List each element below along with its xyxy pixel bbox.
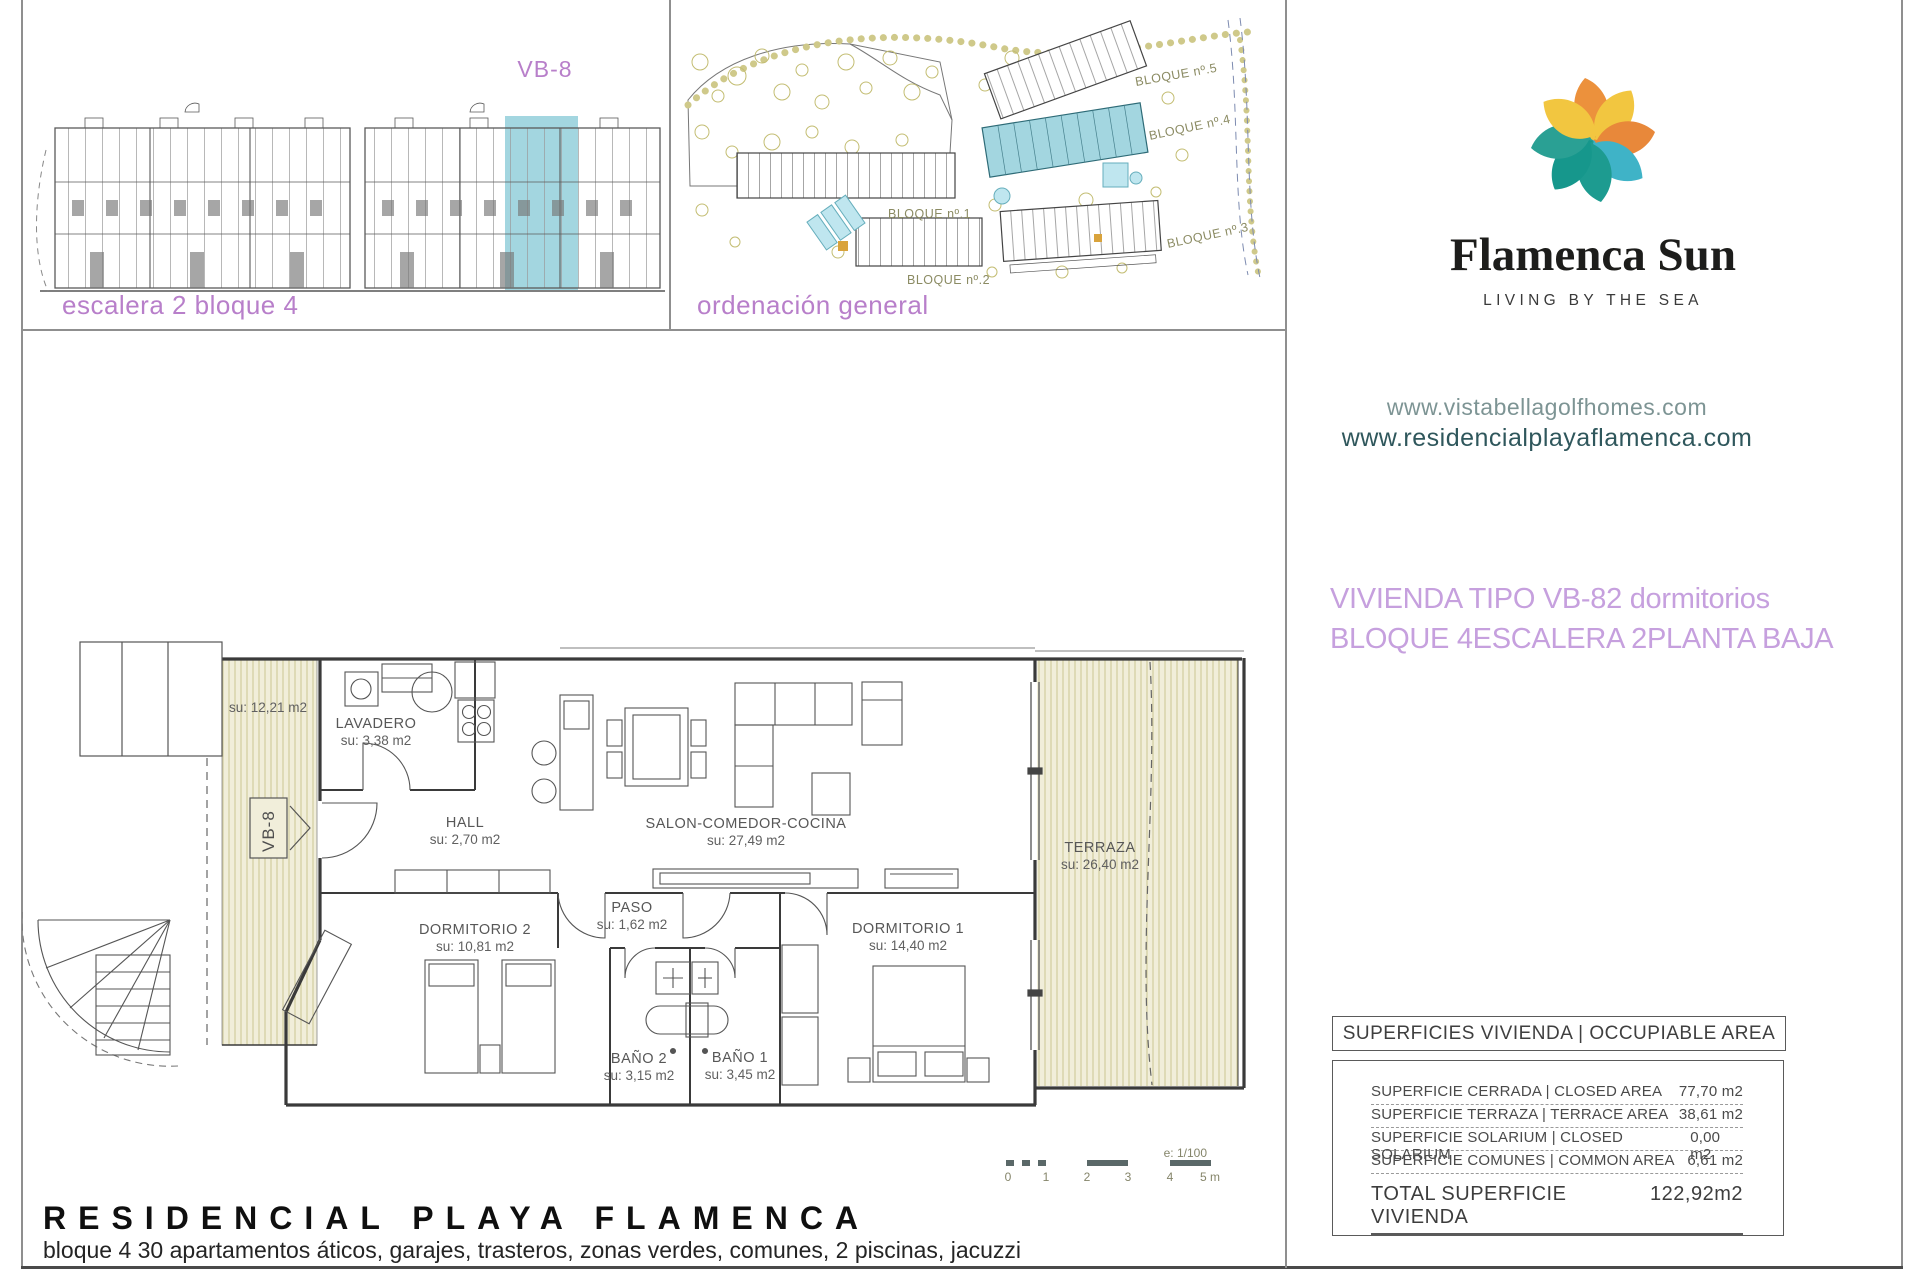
elevation-caption: escalera 2 bloque 4 — [62, 290, 298, 321]
dormitorio1-label: DORMITORIO 1 — [852, 921, 964, 937]
dormitorio1-area: su: 14,40 m2 — [869, 938, 947, 953]
bano2-label: BAÑO 2 — [611, 1050, 667, 1067]
round-pool — [994, 188, 1010, 204]
table-row: SUPERFICIE COMUNES | COMMON AREA 6,61 m2 — [1371, 1152, 1743, 1174]
paso-area: su: 1,62 m2 — [597, 917, 668, 932]
block-elevation-drawing — [22, 0, 670, 330]
table-row: SUPERFICIE TERRAZA | TERRACE AREA 38,61 … — [1371, 1106, 1743, 1128]
brand-name: Flamenca Sun — [1390, 228, 1796, 282]
table-total-row: TOTAL SUPERFICIE VIVIENDA 122,92m2 — [1371, 1183, 1743, 1229]
residencial-subtitle: bloque 4 30 apartamentos áticos, garajes… — [43, 1237, 1021, 1264]
row-value: 38,61 m2 — [1679, 1106, 1743, 1122]
page-right-border — [1901, 0, 1903, 1268]
hall-area: su: 2,70 m2 — [430, 832, 501, 847]
scale-tick-5: 5 m — [1200, 1170, 1220, 1184]
floorplan-drawing: VB-8 — [22, 500, 1286, 1200]
dormitorio2-label: DORMITORIO 2 — [419, 922, 531, 938]
row-label: SUPERFICIE TERRAZA | TERRACE AREA — [1371, 1106, 1669, 1122]
unit-bedrooms-label: 2 dormitorios — [1606, 583, 1770, 616]
bloque-1-label: BLOQUE nº.1 — [888, 207, 971, 221]
flamenca-sun-logo-icon — [1521, 68, 1665, 212]
main-pool — [1103, 163, 1128, 187]
paso-label: PASO — [611, 900, 652, 916]
scale-tick-0: 0 — [1005, 1170, 1012, 1184]
unit-block-label: BLOQUE 4 — [1330, 623, 1473, 656]
website-link-playaflamenca[interactable]: www.residencialplayaflamenca.com — [1300, 424, 1794, 453]
bloque-5-building — [984, 21, 1146, 119]
brand-tagline: LIVING BY THE SEA — [1390, 292, 1796, 310]
door-arcs — [322, 743, 827, 978]
terraza-area: su: 26,40 m2 — [1061, 857, 1139, 872]
hall-label: HALL — [446, 815, 484, 831]
living-dining-furniture — [607, 682, 902, 888]
page-bottom-border — [21, 1266, 1903, 1269]
siteplan-caption: ordenación general — [697, 290, 929, 321]
total-label: TOTAL SUPERFICIE VIVIENDA — [1371, 1183, 1650, 1229]
pinwheel-petals — [1531, 78, 1655, 202]
bloque-1-building — [737, 153, 955, 198]
row-label: SUPERFICIE COMUNES | COMMON AREA — [1371, 1152, 1675, 1168]
jacuzzi-pool — [1130, 172, 1142, 184]
scale-tick-4: 4 — [1167, 1170, 1174, 1184]
communal-stairs — [22, 912, 178, 1066]
scale-tick-1: 1 — [1043, 1170, 1050, 1184]
bano1-area: su: 3,45 m2 — [705, 1067, 776, 1082]
scale-tick-3: 3 — [1125, 1170, 1132, 1184]
salon-area: su: 27,49 m2 — [707, 833, 785, 848]
terraza-hatch — [1037, 660, 1238, 1086]
total-value: 122,92m2 — [1650, 1183, 1743, 1229]
row-value: 77,70 m2 — [1679, 1083, 1743, 1099]
scale-bar: e: 1/100 0 1 2 3 4 5 m — [1005, 1146, 1220, 1184]
unit-type-label: VIVIENDA TIPO VB-8 — [1330, 583, 1606, 616]
unit-floor-label: PLANTA BAJA — [1647, 623, 1833, 656]
planter-structure — [80, 642, 222, 756]
unit-info-block: VIVIENDA TIPO VB-8 2 dormitorios BLOQUE … — [1330, 583, 1767, 656]
terraza-label: TERRAZA — [1064, 840, 1135, 856]
lavadero-area: su: 3,38 m2 — [341, 733, 412, 748]
total-underline — [1371, 1233, 1743, 1235]
bloque-2-building — [856, 218, 982, 266]
unit-stair-label: ESCALERA 2 — [1473, 623, 1647, 656]
bloque-4-label: BLOQUE nº.4 — [1148, 112, 1232, 143]
areas-table-header: SUPERFICIES VIVIENDA | OCCUPIABLE AREA — [1332, 1016, 1786, 1051]
table-row: SUPERFICIE CERRADA | CLOSED AREA 77,70 m… — [1371, 1083, 1743, 1105]
website-link-vistabella[interactable]: www.vistabellagolfhomes.com — [1300, 394, 1794, 421]
scale-label: e: 1/100 — [1164, 1146, 1208, 1160]
scale-tick-2: 2 — [1084, 1170, 1091, 1184]
road-dashed-lines — [1228, 18, 1260, 278]
table-row: SUPERFICIE SOLARIUM | CLOSED SOLARIUM 0,… — [1371, 1129, 1743, 1151]
bloque-3-label: BLOQUE nº.3 — [1166, 220, 1250, 251]
plan-sheet: VB-8 — [0, 0, 1920, 1280]
bano1-label: BAÑO 1 — [712, 1049, 768, 1066]
bloque-2-label: BLOQUE nº.2 — [907, 273, 990, 287]
elevation-terrain-dashed — [37, 150, 49, 291]
row-value: 6,61 m2 — [1687, 1152, 1743, 1168]
interior-walls — [320, 660, 1035, 1105]
left-terrace-area: su: 12,21 m2 — [229, 700, 307, 715]
bedroom2-furniture — [283, 870, 555, 1073]
tree-chain-right — [1240, 40, 1258, 272]
lavadero-label: LAVADERO — [336, 716, 417, 732]
bano2-area: su: 3,15 m2 — [604, 1068, 675, 1083]
bloque-3-building — [1000, 200, 1161, 261]
dormitorio2-area: su: 10,81 m2 — [436, 939, 514, 954]
unit-tag-text: VB-8 — [259, 810, 278, 852]
residencial-title: RESIDENCIAL PLAYA FLAMENCA — [43, 1200, 870, 1237]
row-label: SUPERFICIE CERRADA | CLOSED AREA — [1371, 1083, 1662, 1099]
siteplan-drawing: BLOQUE nº.1 BLOQUE nº.2 BLOQUE nº.3 BLOQ… — [670, 0, 1286, 330]
bedroom1-furniture — [782, 869, 989, 1085]
salon-label: SALON-COMEDOR-COCINA — [646, 816, 847, 832]
bathroom-fixtures — [646, 962, 728, 1054]
row-label: SUPERFICIE SOLARIUM | CLOSED SOLARIUM — [1371, 1129, 1690, 1145]
areas-table: SUPERFICIE CERRADA | CLOSED AREA 77,70 m… — [1332, 1060, 1784, 1236]
row-value: 0,00 m2 — [1690, 1129, 1743, 1145]
